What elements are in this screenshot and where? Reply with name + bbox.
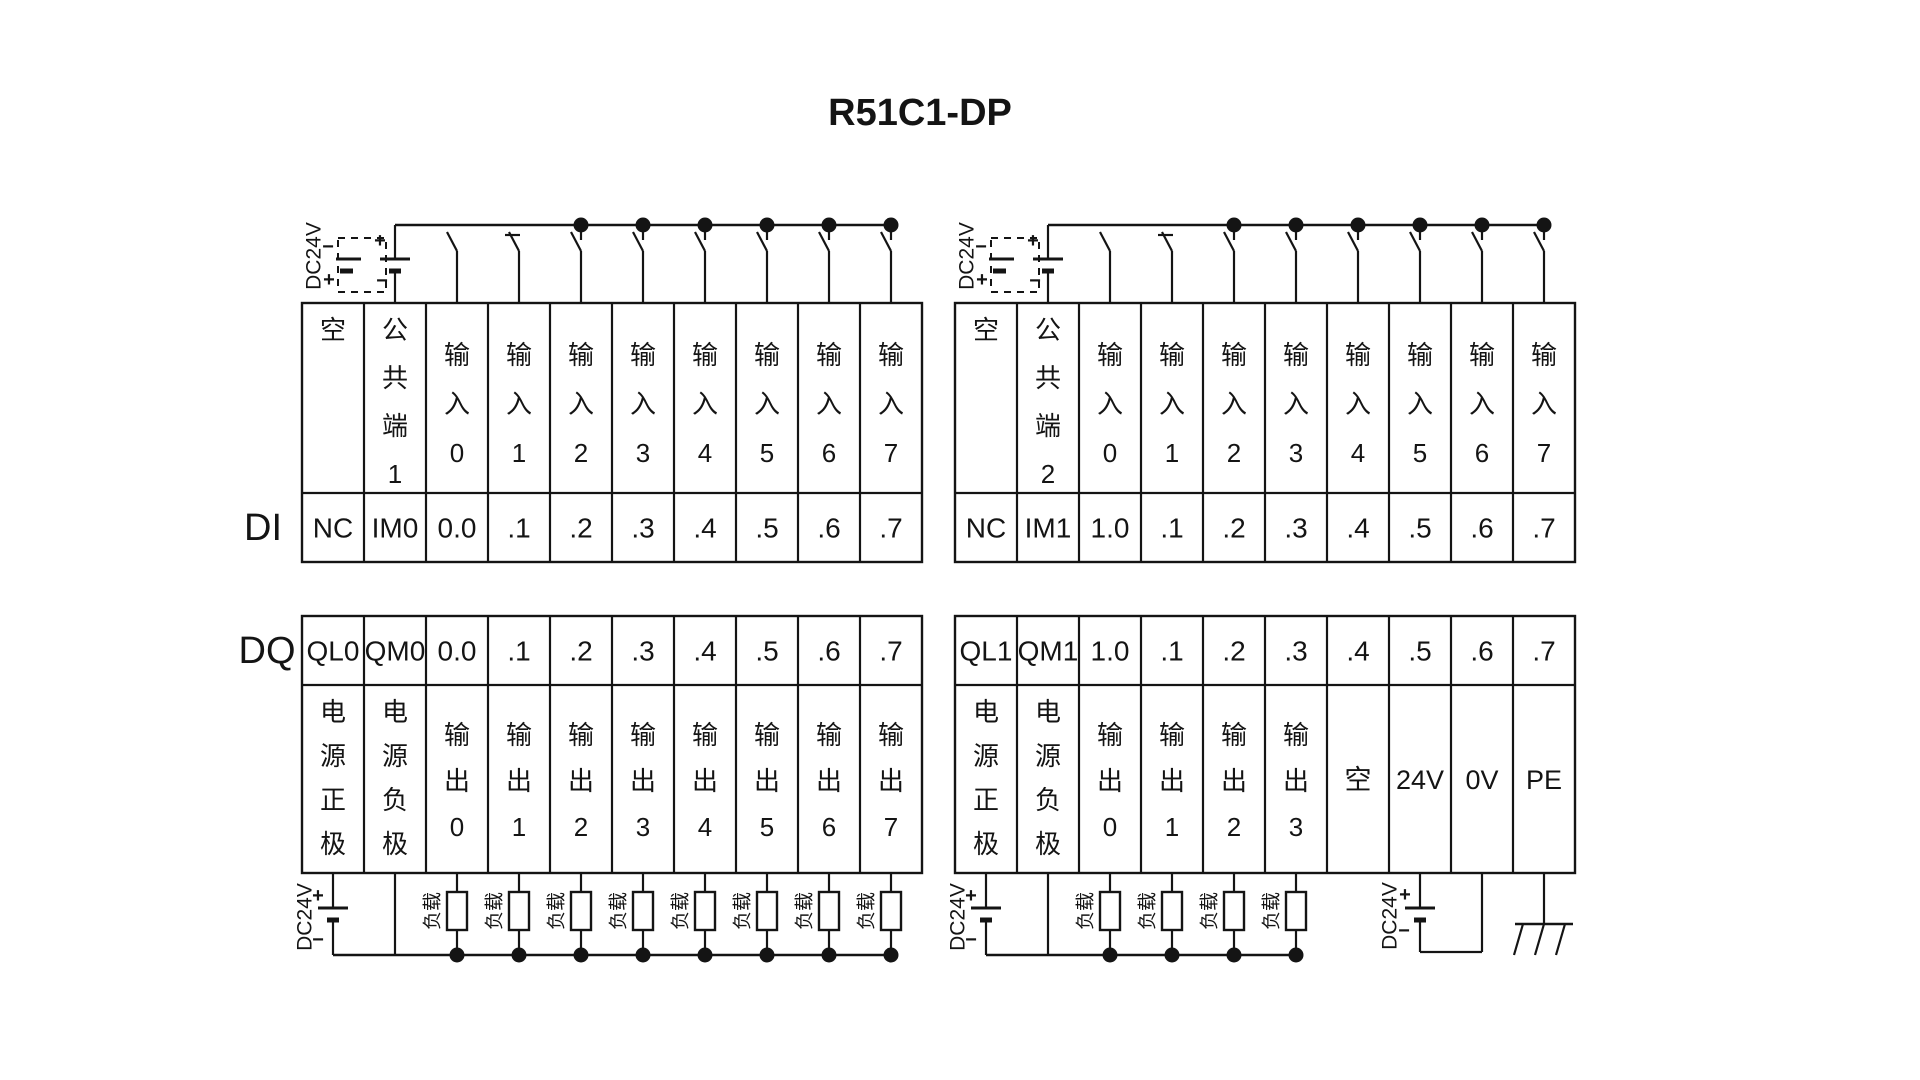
terminal-label: .6	[817, 513, 840, 544]
column-body: 0V	[1465, 765, 1498, 795]
terminal-label: .7	[879, 636, 902, 667]
terminal-label: IM0	[372, 513, 419, 544]
di-table: 空NC公共端2IM1输入01.0输入1.1输入2.2输入3.3输入4.4输入5.…	[955, 303, 1575, 562]
load-label: 负载	[670, 892, 692, 930]
column-header: 空	[320, 315, 346, 345]
terminal-label: .3	[631, 636, 654, 667]
switch-blade	[1100, 232, 1110, 251]
load-resistor-icon	[633, 892, 653, 930]
aux-dc24v-supply: +−DC24V	[1379, 873, 1483, 952]
dc24v-label: DC24V	[947, 883, 970, 951]
column-body: 24V	[1396, 765, 1444, 795]
load-label: 负载	[422, 892, 444, 930]
load-label: 负载	[1137, 892, 1159, 930]
switch-icon	[1100, 232, 1110, 303]
load-resistor-icon	[1286, 892, 1306, 930]
load-branch: 负载	[1137, 873, 1183, 963]
column-header: 输入2	[1221, 340, 1247, 468]
ground-hatch	[1535, 924, 1544, 955]
column-body: 输出7	[878, 720, 904, 842]
junction-dot	[574, 948, 589, 963]
terminal-label: QL1	[960, 636, 1013, 667]
column-body: 输出2	[568, 720, 594, 842]
junction-dot	[1475, 218, 1490, 233]
dc24v-label: DC24V	[294, 883, 317, 951]
terminal-label: QL0	[307, 636, 360, 667]
dq-table: QL0电源正极QM0电源负极0.0输出0.1输出1.2输出2.3输出3.4输出4…	[302, 616, 922, 873]
load-branch: 负载	[484, 873, 530, 963]
column-body: 输出4	[692, 720, 718, 842]
junction-dot	[760, 218, 775, 233]
junction-dot	[698, 948, 713, 963]
column-header: 输入0	[444, 340, 470, 468]
column-body: 输出6	[816, 720, 842, 842]
switch-icon	[571, 218, 589, 304]
load-branch: 负载	[1261, 873, 1307, 963]
switch-blade	[571, 232, 581, 251]
terminal-label: .3	[631, 513, 654, 544]
column-header: 输入7	[878, 340, 904, 468]
terminal-label: 1.0	[1091, 513, 1130, 544]
load-label: 负载	[732, 892, 754, 930]
terminal-label: .2	[569, 636, 592, 667]
di-wiring: −++−DC24V	[303, 218, 899, 304]
switch-blade	[447, 232, 457, 251]
column-body: 输出3	[1283, 720, 1309, 842]
switch-icon	[695, 218, 713, 304]
column-header: 输入1	[1159, 340, 1185, 468]
page-title: R51C1-DP	[828, 92, 1012, 134]
load-label: 负载	[546, 892, 568, 930]
load-resistor-icon	[447, 892, 467, 930]
load-branch: 负载	[608, 873, 654, 963]
load-resistor-icon	[1162, 892, 1182, 930]
battery-plus-sign: +	[1027, 230, 1039, 252]
ground-hatch	[1556, 924, 1565, 955]
column-header: 输入3	[1283, 340, 1309, 468]
column-header: 公共端1	[382, 315, 408, 489]
junction-dot	[1289, 948, 1304, 963]
load-label: 负载	[794, 892, 816, 930]
terminal-label: .6	[1470, 636, 1493, 667]
switch-blade	[1348, 232, 1358, 251]
column-header: 输入6	[816, 340, 842, 468]
dc24v-label: DC24V	[1379, 882, 1402, 950]
terminal-label: .4	[693, 636, 716, 667]
dq-terminal-block-1: QL0电源正极QM0电源负极0.0输出0.1输出1.2输出2.3输出3.4输出4…	[294, 616, 923, 963]
dc24v-supply: +−DC24V	[294, 873, 349, 955]
column-header: 输入1	[506, 340, 532, 468]
load-label: 负载	[608, 892, 630, 930]
column-header: 输入2	[568, 340, 594, 468]
column-body: 电源负极	[382, 697, 408, 859]
terminal-label: .5	[1408, 636, 1431, 667]
load-resistor-icon	[881, 892, 901, 930]
switch-icon	[1472, 218, 1490, 304]
terminal-label: .6	[817, 636, 840, 667]
column-body: 输出0	[444, 720, 470, 842]
switch-blade	[881, 232, 891, 251]
terminal-label: .4	[1346, 636, 1369, 667]
switch-icon	[881, 218, 899, 304]
junction-dot	[884, 948, 899, 963]
column-body: 电源正极	[973, 697, 999, 859]
terminal-label: IM1	[1025, 513, 1072, 544]
switch-icon	[757, 218, 775, 304]
column-body: 电源负极	[1035, 697, 1061, 859]
terminal-label: NC	[966, 513, 1006, 544]
switch-icon	[1224, 218, 1242, 304]
column-body: PE	[1526, 765, 1562, 795]
switch-icon	[819, 218, 837, 304]
dq-wiring: +−DC24V负载负载负载负载+−DC24V	[947, 873, 1574, 963]
terminal-label: .4	[1346, 513, 1369, 544]
earth-ground-icon	[1514, 873, 1573, 955]
junction-dot	[822, 948, 837, 963]
load-resistor-icon	[509, 892, 529, 930]
junction-dot	[760, 948, 775, 963]
di-table: 空NC公共端1IM0输入00.0输入1.1输入2.2输入3.3输入4.4输入5.…	[302, 303, 922, 562]
junction-dot	[1289, 218, 1304, 233]
junction-dot	[1413, 218, 1428, 233]
load-resistor-icon	[1100, 892, 1120, 930]
switch-blade	[1410, 232, 1420, 251]
terminal-label: .3	[1284, 636, 1307, 667]
wiring-diagram-canvas: 空NC公共端1IM0输入00.0输入1.1输入2.2输入3.3输入4.4输入5.…	[0, 0, 1920, 1080]
terminal-label: 1.0	[1091, 636, 1130, 667]
dq-section-label: DQ	[239, 630, 296, 672]
terminal-label: 0.0	[438, 513, 477, 544]
dq-terminal-block-2: QL1电源正极QM1电源负极1.0输出0.1输出1.2输出2.3输出3.4空.5…	[947, 616, 1576, 963]
junction-dot	[636, 218, 651, 233]
column-body: 空	[1345, 765, 1372, 795]
terminal-label: QM1	[1018, 636, 1079, 667]
terminal-label: .7	[879, 513, 902, 544]
column-header: 输入6	[1469, 340, 1495, 468]
switch-icon	[633, 218, 651, 304]
load-label: 负载	[856, 892, 878, 930]
terminal-label: .2	[569, 513, 592, 544]
terminal-label: .1	[1160, 513, 1183, 544]
di-wiring: −++−DC24V	[956, 218, 1552, 304]
junction-dot	[1103, 948, 1118, 963]
column-header: 输入3	[630, 340, 656, 468]
dq-wiring: +−DC24V负载负载负载负载负载负载负载负载	[294, 873, 902, 963]
junction-dot	[1227, 218, 1242, 233]
column-header: 输入4	[692, 340, 718, 468]
battery-icon	[989, 259, 1014, 271]
switch-icon	[505, 232, 520, 303]
terminal-label: NC	[313, 513, 353, 544]
load-resistor-icon	[695, 892, 715, 930]
switch-icon	[1410, 218, 1428, 304]
plc-wiring-diagram-page: 空NC公共端1IM0输入00.0输入1.1输入2.2输入3.3输入4.4输入5.…	[0, 0, 1920, 1080]
junction-dot	[574, 218, 589, 233]
switch-blade	[1224, 232, 1234, 251]
terminal-label: .2	[1222, 636, 1245, 667]
terminal-label: 0.0	[438, 636, 477, 667]
terminal-label: .7	[1532, 513, 1555, 544]
di-terminal-block-1: 空NC公共端1IM0输入00.0输入1.1输入2.2输入3.3输入4.4输入5.…	[302, 218, 922, 563]
dq-table: QL1电源正极QM1电源负极1.0输出0.1输出1.2输出2.3输出3.4空.5…	[955, 616, 1575, 873]
load-resistor-icon	[1224, 892, 1244, 930]
column-body: 输出1	[506, 720, 532, 842]
column-body: 输出3	[630, 720, 656, 842]
junction-dot	[1165, 948, 1180, 963]
switch-blade	[1534, 232, 1544, 251]
column-body: 输出5	[754, 720, 780, 842]
junction-dot	[1227, 948, 1242, 963]
load-branch: 负载	[670, 873, 716, 963]
load-branch: 负载	[732, 873, 778, 963]
junction-dot	[450, 948, 465, 963]
switch-blade	[757, 232, 767, 251]
load-branch: 负载	[794, 873, 840, 963]
column-body: 输出1	[1159, 720, 1185, 842]
load-branch: 负载	[1199, 873, 1245, 963]
junction-dot	[822, 218, 837, 233]
column-header: 公共端2	[1035, 315, 1061, 489]
junction-dot	[884, 218, 899, 233]
dc24v-supply: −++−DC24V	[303, 222, 411, 303]
di-terminal-block-2: 空NC公共端2IM1输入01.0输入1.1输入2.2输入3.3输入4.4输入5.…	[955, 218, 1575, 563]
load-label: 负载	[484, 892, 506, 930]
switch-blade	[819, 232, 829, 251]
terminal-label: .5	[1408, 513, 1431, 544]
column-header: 输入0	[1097, 340, 1123, 468]
column-header: 输入5	[754, 340, 780, 468]
load-branch: 负载	[546, 873, 592, 963]
column-header: 空	[973, 315, 999, 345]
load-branch: 负载	[1075, 873, 1121, 963]
terminal-label: .3	[1284, 513, 1307, 544]
terminal-label: .7	[1532, 636, 1555, 667]
switch-icon	[1348, 218, 1366, 304]
terminal-label: QM0	[365, 636, 426, 667]
column-body: 电源正极	[320, 697, 346, 859]
column-header: 输入4	[1345, 340, 1371, 468]
load-label: 负载	[1261, 892, 1283, 930]
load-resistor-icon	[571, 892, 591, 930]
dc24v-label: DC24V	[303, 222, 326, 290]
dc24v-supply: −++−DC24V	[956, 222, 1064, 303]
battery-icon	[336, 259, 361, 271]
dc24v-supply: +−DC24V	[947, 873, 1002, 955]
terminal-label: .2	[1222, 513, 1245, 544]
column-body: 输出2	[1221, 720, 1247, 842]
switch-blade	[695, 232, 705, 251]
terminal-label: .5	[755, 636, 778, 667]
switch-icon	[1286, 218, 1304, 304]
ground-hatch	[1514, 924, 1523, 955]
dc24v-label: DC24V	[956, 222, 979, 290]
terminal-label: .4	[693, 513, 716, 544]
terminal-label: .1	[507, 513, 530, 544]
terminal-label: .1	[507, 636, 530, 667]
load-branch: 负载	[422, 873, 468, 963]
load-branch: 负载	[856, 873, 902, 963]
switch-blade	[1472, 232, 1482, 251]
junction-dot	[698, 218, 713, 233]
di-section-label: DI	[244, 507, 282, 549]
load-label: 负载	[1075, 892, 1097, 930]
column-header: 输入5	[1407, 340, 1433, 468]
load-label: 负载	[1199, 892, 1221, 930]
switch-blade	[1286, 232, 1296, 251]
junction-dot	[636, 948, 651, 963]
load-resistor-icon	[819, 892, 839, 930]
switch-blade	[633, 232, 643, 251]
column-body: 输出0	[1097, 720, 1123, 842]
terminal-label: .5	[755, 513, 778, 544]
load-resistor-icon	[757, 892, 777, 930]
junction-dot	[1537, 218, 1552, 233]
switch-icon	[1158, 232, 1173, 303]
switch-icon	[447, 232, 457, 303]
junction-dot	[512, 948, 527, 963]
battery-minus-sign: −	[376, 270, 388, 292]
terminal-label: .6	[1470, 513, 1493, 544]
column-header: 输入7	[1531, 340, 1557, 468]
terminal-label: .1	[1160, 636, 1183, 667]
battery-plus-sign: +	[374, 230, 386, 252]
battery-minus-sign: −	[1029, 270, 1041, 292]
switch-icon	[1534, 218, 1552, 304]
junction-dot	[1351, 218, 1366, 233]
